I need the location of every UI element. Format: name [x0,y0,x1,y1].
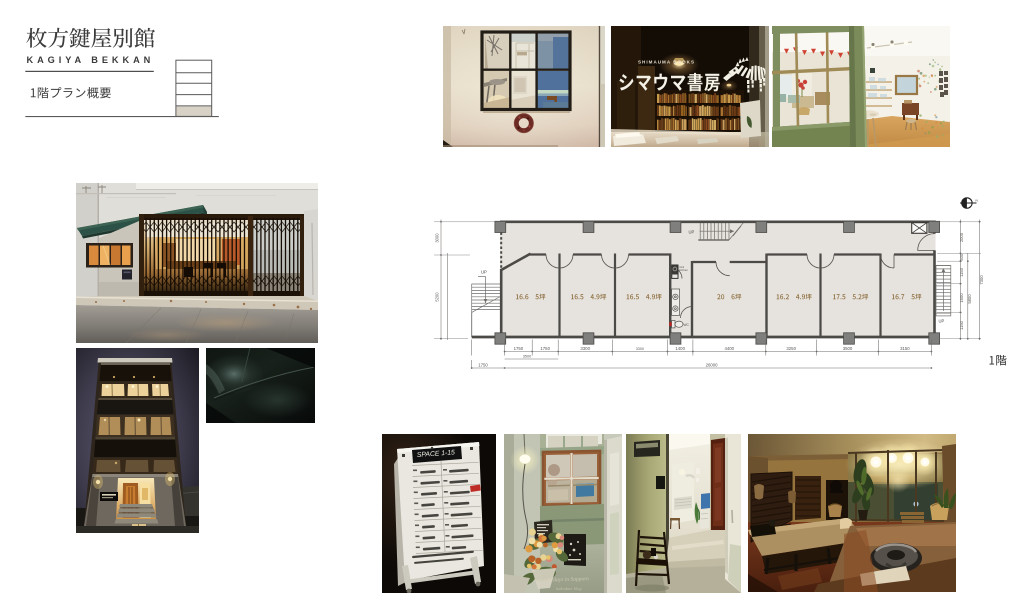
svg-text:3150: 3150 [900,346,910,351]
svg-text:2000: 2000 [959,232,964,242]
svg-text:N: N [976,199,978,203]
svg-text:7300: 7300 [979,275,984,285]
svg-text:3000: 3000 [435,233,440,243]
svg-text:3300: 3300 [580,346,590,351]
svg-text:3300: 3300 [636,347,644,351]
svg-text:KAGIYA BEKKAN: KAGIYA BEKKAN [27,55,155,65]
svg-text:3500: 3500 [523,354,531,358]
svg-text:kitchen: kitchen [679,268,688,272]
svg-text:1750: 1750 [478,362,488,367]
svg-text:1750: 1750 [540,346,550,351]
svg-text:1150: 1150 [959,267,964,277]
svg-text:UP: UP [481,270,487,275]
svg-text:1600: 1600 [959,293,964,303]
svg-text:5800: 5800 [967,294,972,304]
svg-text:5200: 5200 [435,292,440,302]
svg-text:3250: 3250 [786,346,796,351]
svg-text:UP: UP [939,319,945,324]
svg-text:26000: 26000 [706,362,719,367]
svg-text:WC: WC [684,323,690,327]
svg-text:1750: 1750 [514,346,524,351]
svg-text:4400: 4400 [725,346,735,351]
svg-text:hakodate blog: hakodate blog [556,586,582,591]
svg-text:3500: 3500 [843,346,853,351]
svg-text:1150: 1150 [959,320,964,330]
svg-text:500: 500 [959,253,964,261]
svg-text:1400: 1400 [675,346,685,351]
svg-text:SHIMAUMA BOOKS: SHIMAUMA BOOKS [638,60,695,65]
svg-text:UP: UP [689,230,695,235]
